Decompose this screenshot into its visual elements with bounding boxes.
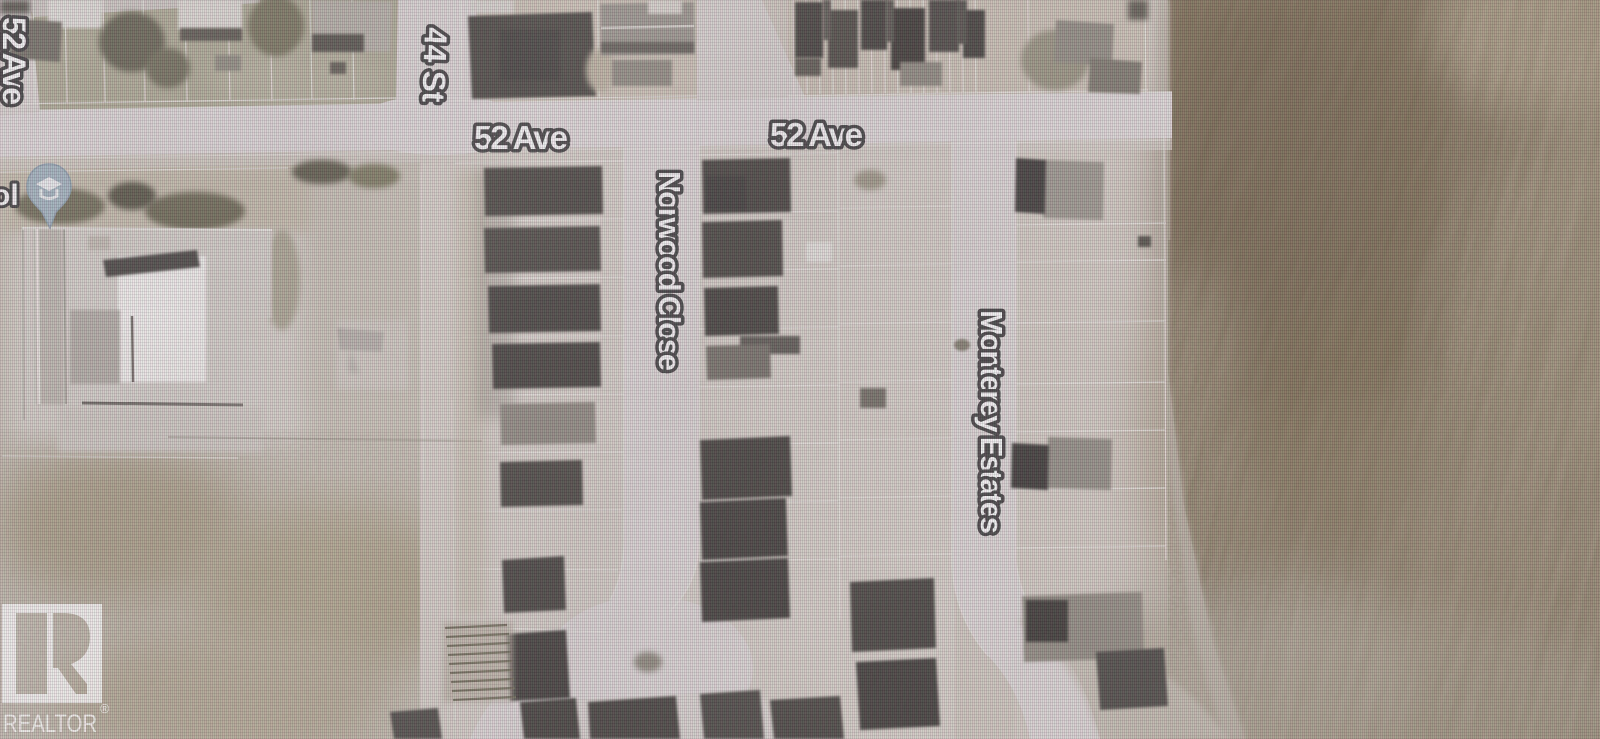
svg-text:®: ® — [100, 702, 110, 716]
svg-text:REALTOR: REALTOR — [3, 710, 97, 738]
